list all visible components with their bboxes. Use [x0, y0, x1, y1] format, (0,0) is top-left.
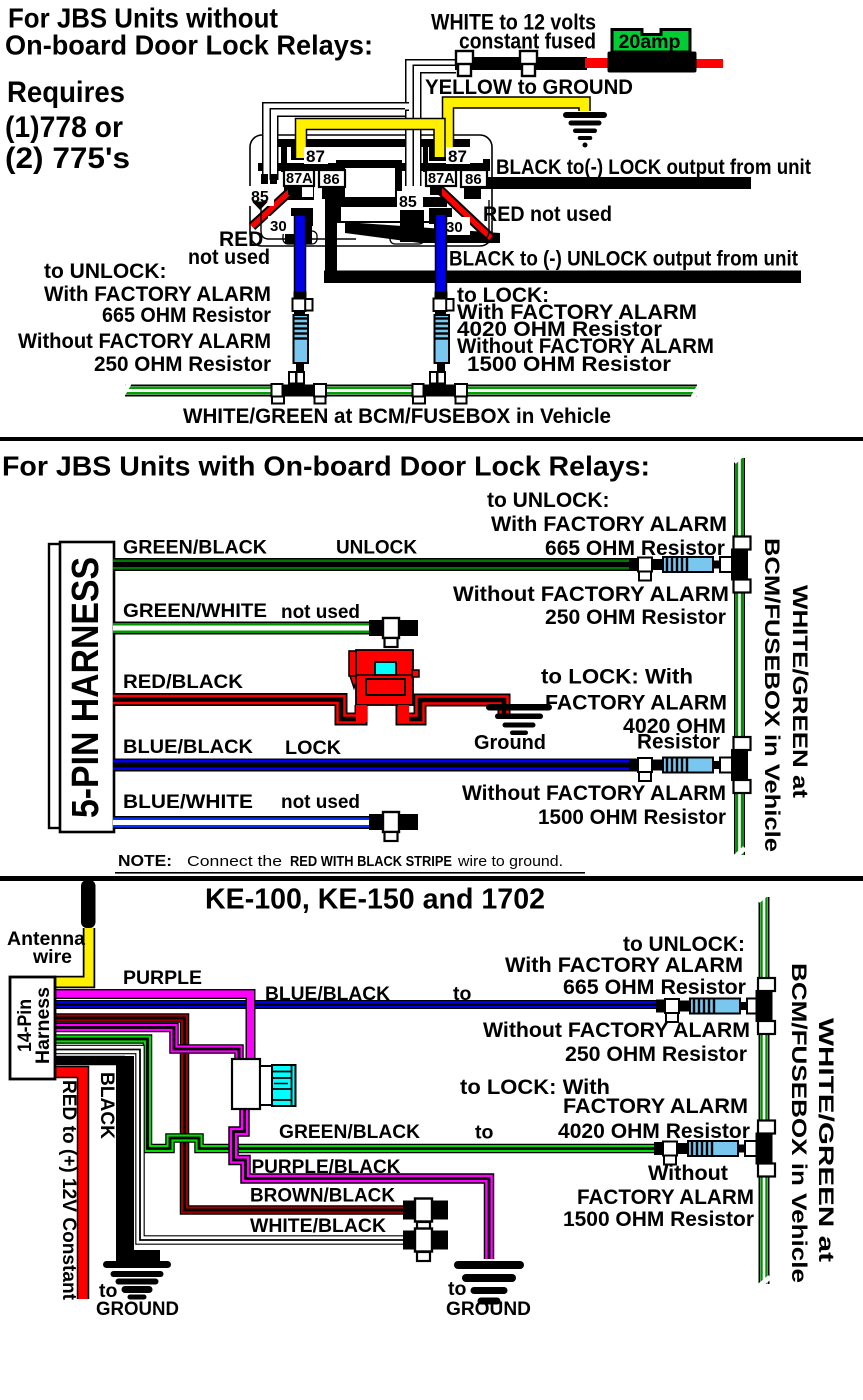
svg-text:BCM/FUSEBOX in Vehicle: BCM/FUSEBOX in Vehicle — [787, 963, 810, 1283]
svg-text:BLUE/BLACK: BLUE/BLACK — [123, 736, 253, 758]
svg-text:BLACK to (-) UNLOCK output fro: BLACK to (-) UNLOCK output from unit — [449, 248, 798, 271]
svg-text:250 OHM Resistor: 250 OHM Resistor — [94, 353, 271, 376]
svg-text:RED not used: RED not used — [483, 203, 612, 226]
svg-text:30: 30 — [446, 219, 463, 236]
svg-text:Harness: Harness — [33, 987, 54, 1064]
svg-text:UNLOCK: UNLOCK — [336, 537, 417, 559]
svg-text:(2) 775's: (2) 775's — [5, 142, 130, 175]
svg-text:PURPLE/BLACK: PURPLE/BLACK — [252, 1156, 401, 1178]
svg-text:NOTE:: NOTE: — [118, 853, 172, 870]
svg-text:FACTORY ALARM: FACTORY ALARM — [577, 1186, 754, 1209]
svg-text:RED/BLACK: RED/BLACK — [123, 671, 243, 693]
svg-text:KE-100, KE-150 and 1702: KE-100, KE-150 and 1702 — [205, 884, 545, 916]
svg-text:not used: not used — [188, 246, 270, 269]
svg-text:YELLOW to GROUND: YELLOW to GROUND — [425, 75, 633, 99]
svg-text:Requires: Requires — [7, 76, 125, 109]
svg-text:Without: Without — [648, 1162, 728, 1185]
svg-text:to LOCK: With: to LOCK: With — [541, 666, 693, 689]
svg-text:GREEN/WHITE: GREEN/WHITE — [123, 600, 267, 622]
svg-text:Without FACTORY ALARM: Without FACTORY ALARM — [483, 1019, 750, 1042]
svg-text:665 OHM Resistor: 665 OHM Resistor — [563, 976, 746, 999]
svg-text:87A: 87A — [286, 171, 313, 187]
svg-text:GREEN/BLACK: GREEN/BLACK — [123, 537, 267, 559]
svg-text:RED to (+) 12V Constant: RED to (+) 12V Constant — [58, 1080, 80, 1300]
svg-text:BLACK to(-) LOCK output from u: BLACK to(-) LOCK output from unit — [496, 156, 811, 179]
svg-text:WHITE/BLACK: WHITE/BLACK — [250, 1215, 386, 1237]
svg-text:to: to — [453, 983, 471, 1005]
svg-text:FACTORY ALARM: FACTORY ALARM — [545, 692, 727, 715]
svg-text:not used: not used — [281, 601, 360, 623]
svg-text:5-PIN HARNESS: 5-PIN HARNESS — [65, 557, 107, 818]
svg-text:85: 85 — [399, 194, 417, 211]
svg-text:BLUE/BLACK: BLUE/BLACK — [265, 983, 390, 1005]
svg-text:665 OHM Resistor: 665 OHM Resistor — [545, 537, 725, 560]
svg-text:Without FACTORY ALARM: Without FACTORY ALARM — [18, 330, 271, 353]
svg-text:PURPLE: PURPLE — [123, 967, 202, 989]
svg-text:to UNLOCK:: to UNLOCK: — [623, 933, 745, 956]
svg-text:665 OHM Resistor: 665 OHM Resistor — [102, 304, 271, 327]
svg-text:LOCK: LOCK — [285, 737, 341, 759]
svg-text:wire: wire — [32, 946, 72, 968]
svg-text:86: 86 — [465, 171, 482, 188]
svg-text:BLACK: BLACK — [96, 1072, 118, 1139]
svg-text:FACTORY ALARM: FACTORY ALARM — [563, 1095, 748, 1118]
svg-text:wire to ground.: wire to ground. — [457, 853, 563, 870]
svg-text:GROUND: GROUND — [96, 1298, 179, 1320]
svg-text:to: to — [475, 1122, 493, 1144]
svg-text:86: 86 — [323, 171, 340, 188]
svg-text:With FACTORY ALARM: With FACTORY ALARM — [491, 513, 727, 536]
svg-text:Resistor: Resistor — [637, 731, 720, 754]
svg-text:to UNLOCK:: to UNLOCK: — [487, 489, 609, 512]
svg-text:not used: not used — [281, 791, 360, 813]
svg-text:Without FACTORY ALARM: Without FACTORY ALARM — [453, 583, 729, 606]
svg-text:WHITE/GREEN at: WHITE/GREEN at — [788, 585, 811, 798]
svg-text:20amp: 20amp — [619, 31, 681, 53]
svg-text:30: 30 — [270, 218, 287, 235]
svg-text:250 OHM Resistor: 250 OHM Resistor — [545, 606, 726, 629]
svg-text:to: to — [448, 1278, 466, 1300]
svg-text:BLUE/WHITE: BLUE/WHITE — [123, 791, 253, 813]
svg-text:1500 OHM Resistor: 1500 OHM Resistor — [563, 1208, 754, 1231]
svg-text:(1)778 or: (1)778 or — [5, 111, 123, 144]
svg-text:1500 OHM Resistor: 1500 OHM Resistor — [467, 353, 671, 376]
svg-text:Without FACTORY ALARM: Without FACTORY ALARM — [462, 782, 726, 805]
svg-text:to UNLOCK:: to UNLOCK: — [44, 260, 166, 283]
svg-text:constant fused: constant fused — [459, 29, 596, 54]
svg-text:WHITE/GREEN at: WHITE/GREEN at — [814, 1018, 837, 1262]
svg-text:WHITE/GREEN at BCM/FUSEBOX in: WHITE/GREEN at BCM/FUSEBOX in Vehicle — [183, 405, 611, 428]
svg-text:On-board Door Lock Relays:: On-board Door Lock Relays: — [5, 30, 373, 61]
svg-text:With FACTORY ALARM: With FACTORY ALARM — [505, 954, 743, 977]
svg-text:87: 87 — [306, 147, 325, 166]
svg-text:For JBS Units with On-board Do: For JBS Units with On-board Door Lock Re… — [2, 451, 650, 482]
svg-text:250 OHM Resistor: 250 OHM Resistor — [565, 1043, 747, 1066]
svg-text:BCM/FUSEBOX in Vehicle: BCM/FUSEBOX in Vehicle — [760, 538, 783, 852]
svg-text:87: 87 — [448, 147, 467, 166]
svg-text:GROUND: GROUND — [446, 1298, 531, 1320]
svg-text:4020 OHM Resistor: 4020 OHM Resistor — [558, 1120, 750, 1143]
svg-text:Ground: Ground — [474, 732, 546, 754]
svg-text:Connect the: Connect the — [187, 853, 282, 870]
svg-text:87A: 87A — [428, 171, 455, 187]
svg-text:1500 OHM Resistor: 1500 OHM Resistor — [538, 806, 726, 829]
svg-text:With FACTORY ALARM: With FACTORY ALARM — [44, 283, 271, 306]
svg-text:RED WITH BLACK STRIPE: RED WITH BLACK STRIPE — [290, 853, 452, 870]
svg-text:GREEN/BLACK: GREEN/BLACK — [279, 1121, 420, 1143]
svg-text:BROWN/BLACK: BROWN/BLACK — [250, 1185, 395, 1207]
